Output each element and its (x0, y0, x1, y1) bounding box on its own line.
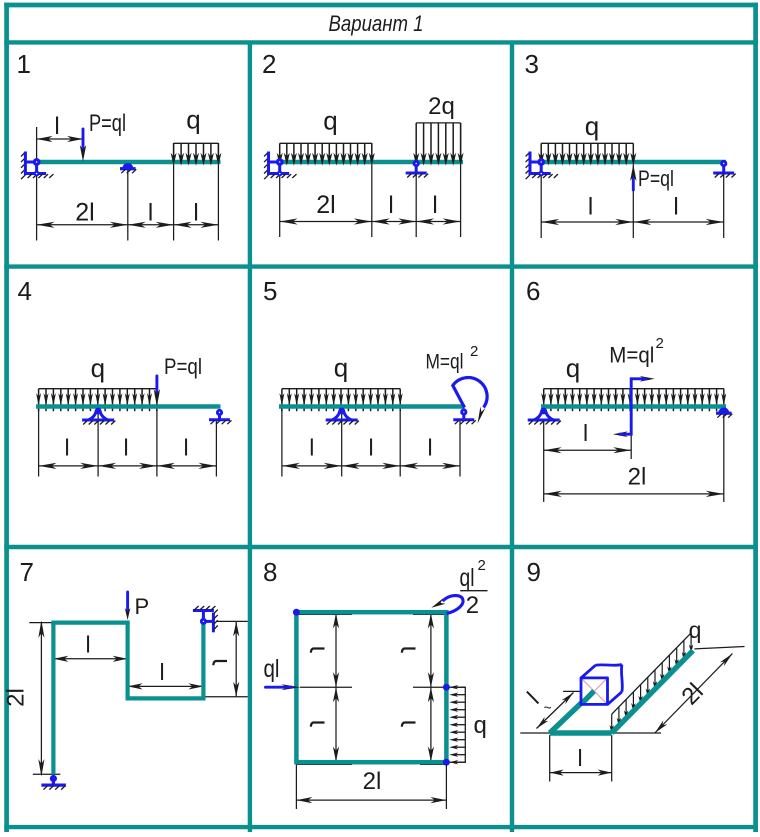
svg-text:q: q (585, 111, 599, 141)
svg-text:4: 4 (18, 276, 32, 306)
svg-text:l: l (388, 192, 393, 219)
svg-text:l: l (148, 200, 153, 227)
svg-text:3: 3 (525, 49, 539, 79)
svg-text:2: 2 (262, 49, 276, 79)
svg-text:2l: 2l (628, 464, 647, 491)
svg-text:6: 6 (526, 276, 540, 306)
svg-text:2: 2 (470, 343, 478, 360)
svg-text:1: 1 (17, 49, 31, 79)
svg-text:P=ql: P=ql (164, 354, 202, 379)
svg-text:l: l (588, 194, 593, 221)
svg-text:P=ql: P=ql (638, 166, 674, 191)
svg-text:l: l (123, 435, 128, 461)
svg-text:2l: 2l (75, 199, 94, 227)
svg-text:q: q (334, 353, 348, 383)
svg-text:q: q (91, 353, 105, 383)
svg-text:2l: 2l (316, 191, 335, 219)
svg-text:q: q (474, 712, 487, 739)
svg-text:l: l (159, 659, 164, 685)
svg-text:M=ql: M=ql (426, 351, 464, 374)
svg-text:P: P (135, 594, 150, 619)
svg-text:2: 2 (656, 335, 664, 352)
svg-text:2: 2 (478, 557, 486, 574)
svg-text:q: q (689, 617, 702, 643)
svg-text:8: 8 (263, 557, 277, 587)
svg-text:q: q (323, 106, 337, 136)
svg-text:l: l (432, 192, 437, 219)
svg-text:l: l (85, 632, 90, 658)
svg-text:l: l (368, 435, 373, 461)
svg-text:Вариант 1: Вариант 1 (329, 11, 424, 36)
svg-text:l: l (673, 194, 678, 221)
svg-text:ql: ql (460, 564, 475, 592)
svg-text:l: l (427, 435, 432, 461)
svg-text:5: 5 (263, 276, 277, 306)
svg-text:2l: 2l (3, 688, 30, 707)
svg-text:9: 9 (527, 557, 541, 587)
svg-text:l: l (183, 435, 188, 461)
svg-text:P=ql: P=ql (89, 110, 126, 137)
svg-text:2l: 2l (363, 768, 382, 795)
svg-text:~: ~ (544, 700, 552, 716)
svg-text:ql: ql (264, 655, 280, 683)
svg-text:q: q (566, 353, 580, 383)
svg-text:2: 2 (466, 592, 479, 619)
svg-text:2q: 2q (428, 93, 455, 120)
svg-text:7: 7 (20, 557, 34, 587)
svg-text:q: q (186, 105, 200, 135)
svg-text:l: l (54, 113, 59, 140)
svg-text:l: l (577, 745, 582, 771)
svg-text:l: l (309, 435, 314, 461)
svg-text:l: l (64, 435, 69, 461)
svg-text:M=ql: M=ql (609, 343, 654, 368)
svg-text:l: l (583, 420, 588, 446)
svg-text:l: l (193, 200, 198, 227)
